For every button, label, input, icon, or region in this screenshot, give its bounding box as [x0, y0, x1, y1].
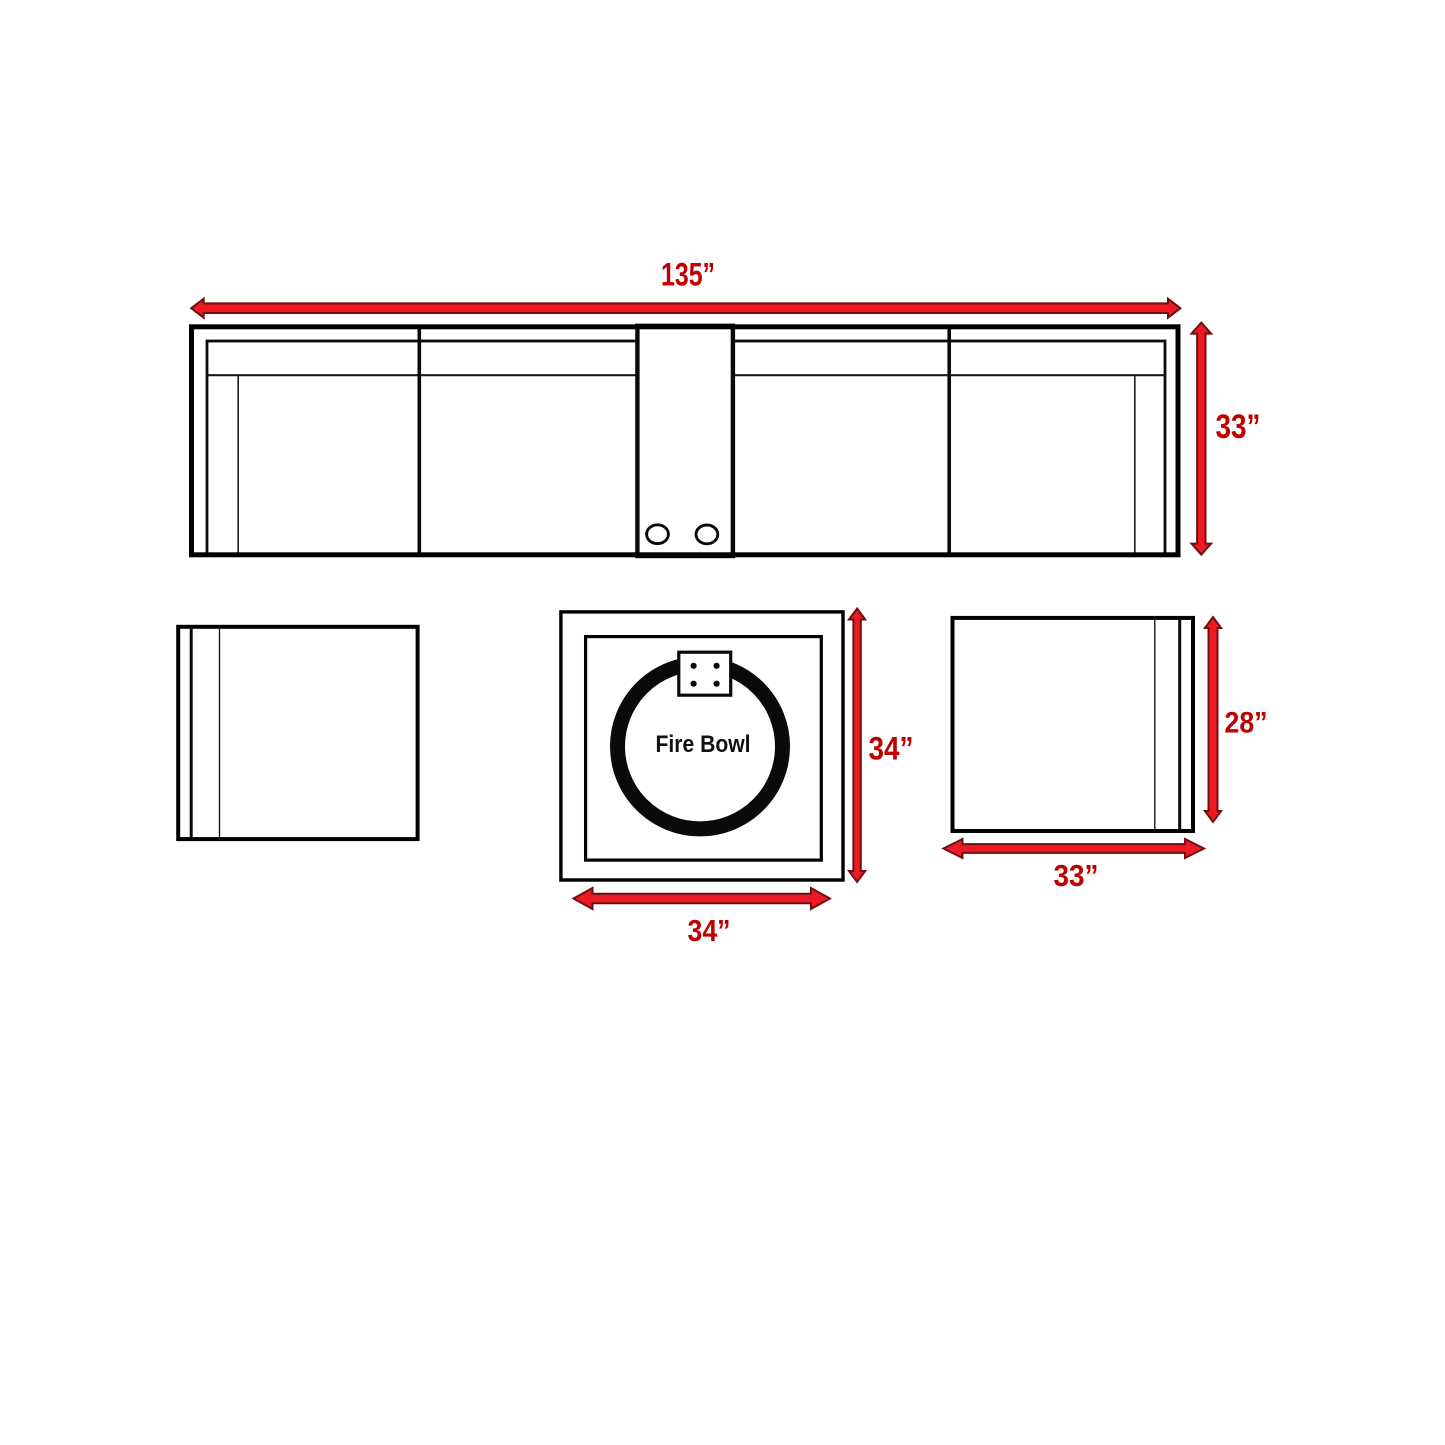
svg-text:Fire Bowl: Fire Bowl	[656, 731, 751, 758]
svg-text:28”: 28”	[1225, 707, 1268, 740]
svg-text:135”: 135”	[661, 257, 715, 293]
svg-text:34”: 34”	[869, 731, 914, 767]
svg-text:34”: 34”	[688, 913, 731, 948]
svg-text:33”: 33”	[1216, 408, 1261, 446]
svg-text:33”: 33”	[1054, 858, 1099, 893]
